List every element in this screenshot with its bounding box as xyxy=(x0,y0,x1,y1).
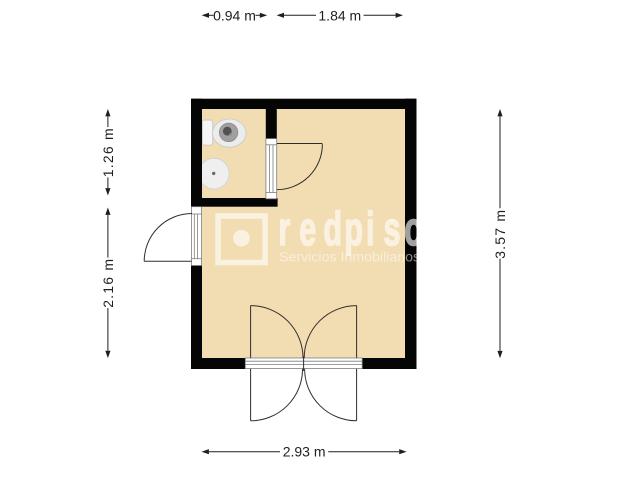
svg-text:p: p xyxy=(344,203,363,255)
svg-text:s: s xyxy=(384,203,401,255)
svg-text:i: i xyxy=(366,203,374,255)
svg-text:d: d xyxy=(323,203,342,255)
svg-text:2.16 m: 2.16 m xyxy=(100,258,116,308)
svg-text:Servicios Inmobiliarios: Servicios Inmobiliarios xyxy=(279,250,420,266)
svg-text:2.93 m: 2.93 m xyxy=(283,443,326,459)
svg-text:0.94 m: 0.94 m xyxy=(213,7,256,23)
svg-text:r: r xyxy=(278,203,290,255)
svg-text:3.57 m: 3.57 m xyxy=(492,209,508,259)
svg-text:1.26 m: 1.26 m xyxy=(100,127,116,177)
svg-text:e: e xyxy=(299,203,316,255)
svg-text:1.84 m: 1.84 m xyxy=(318,7,361,23)
